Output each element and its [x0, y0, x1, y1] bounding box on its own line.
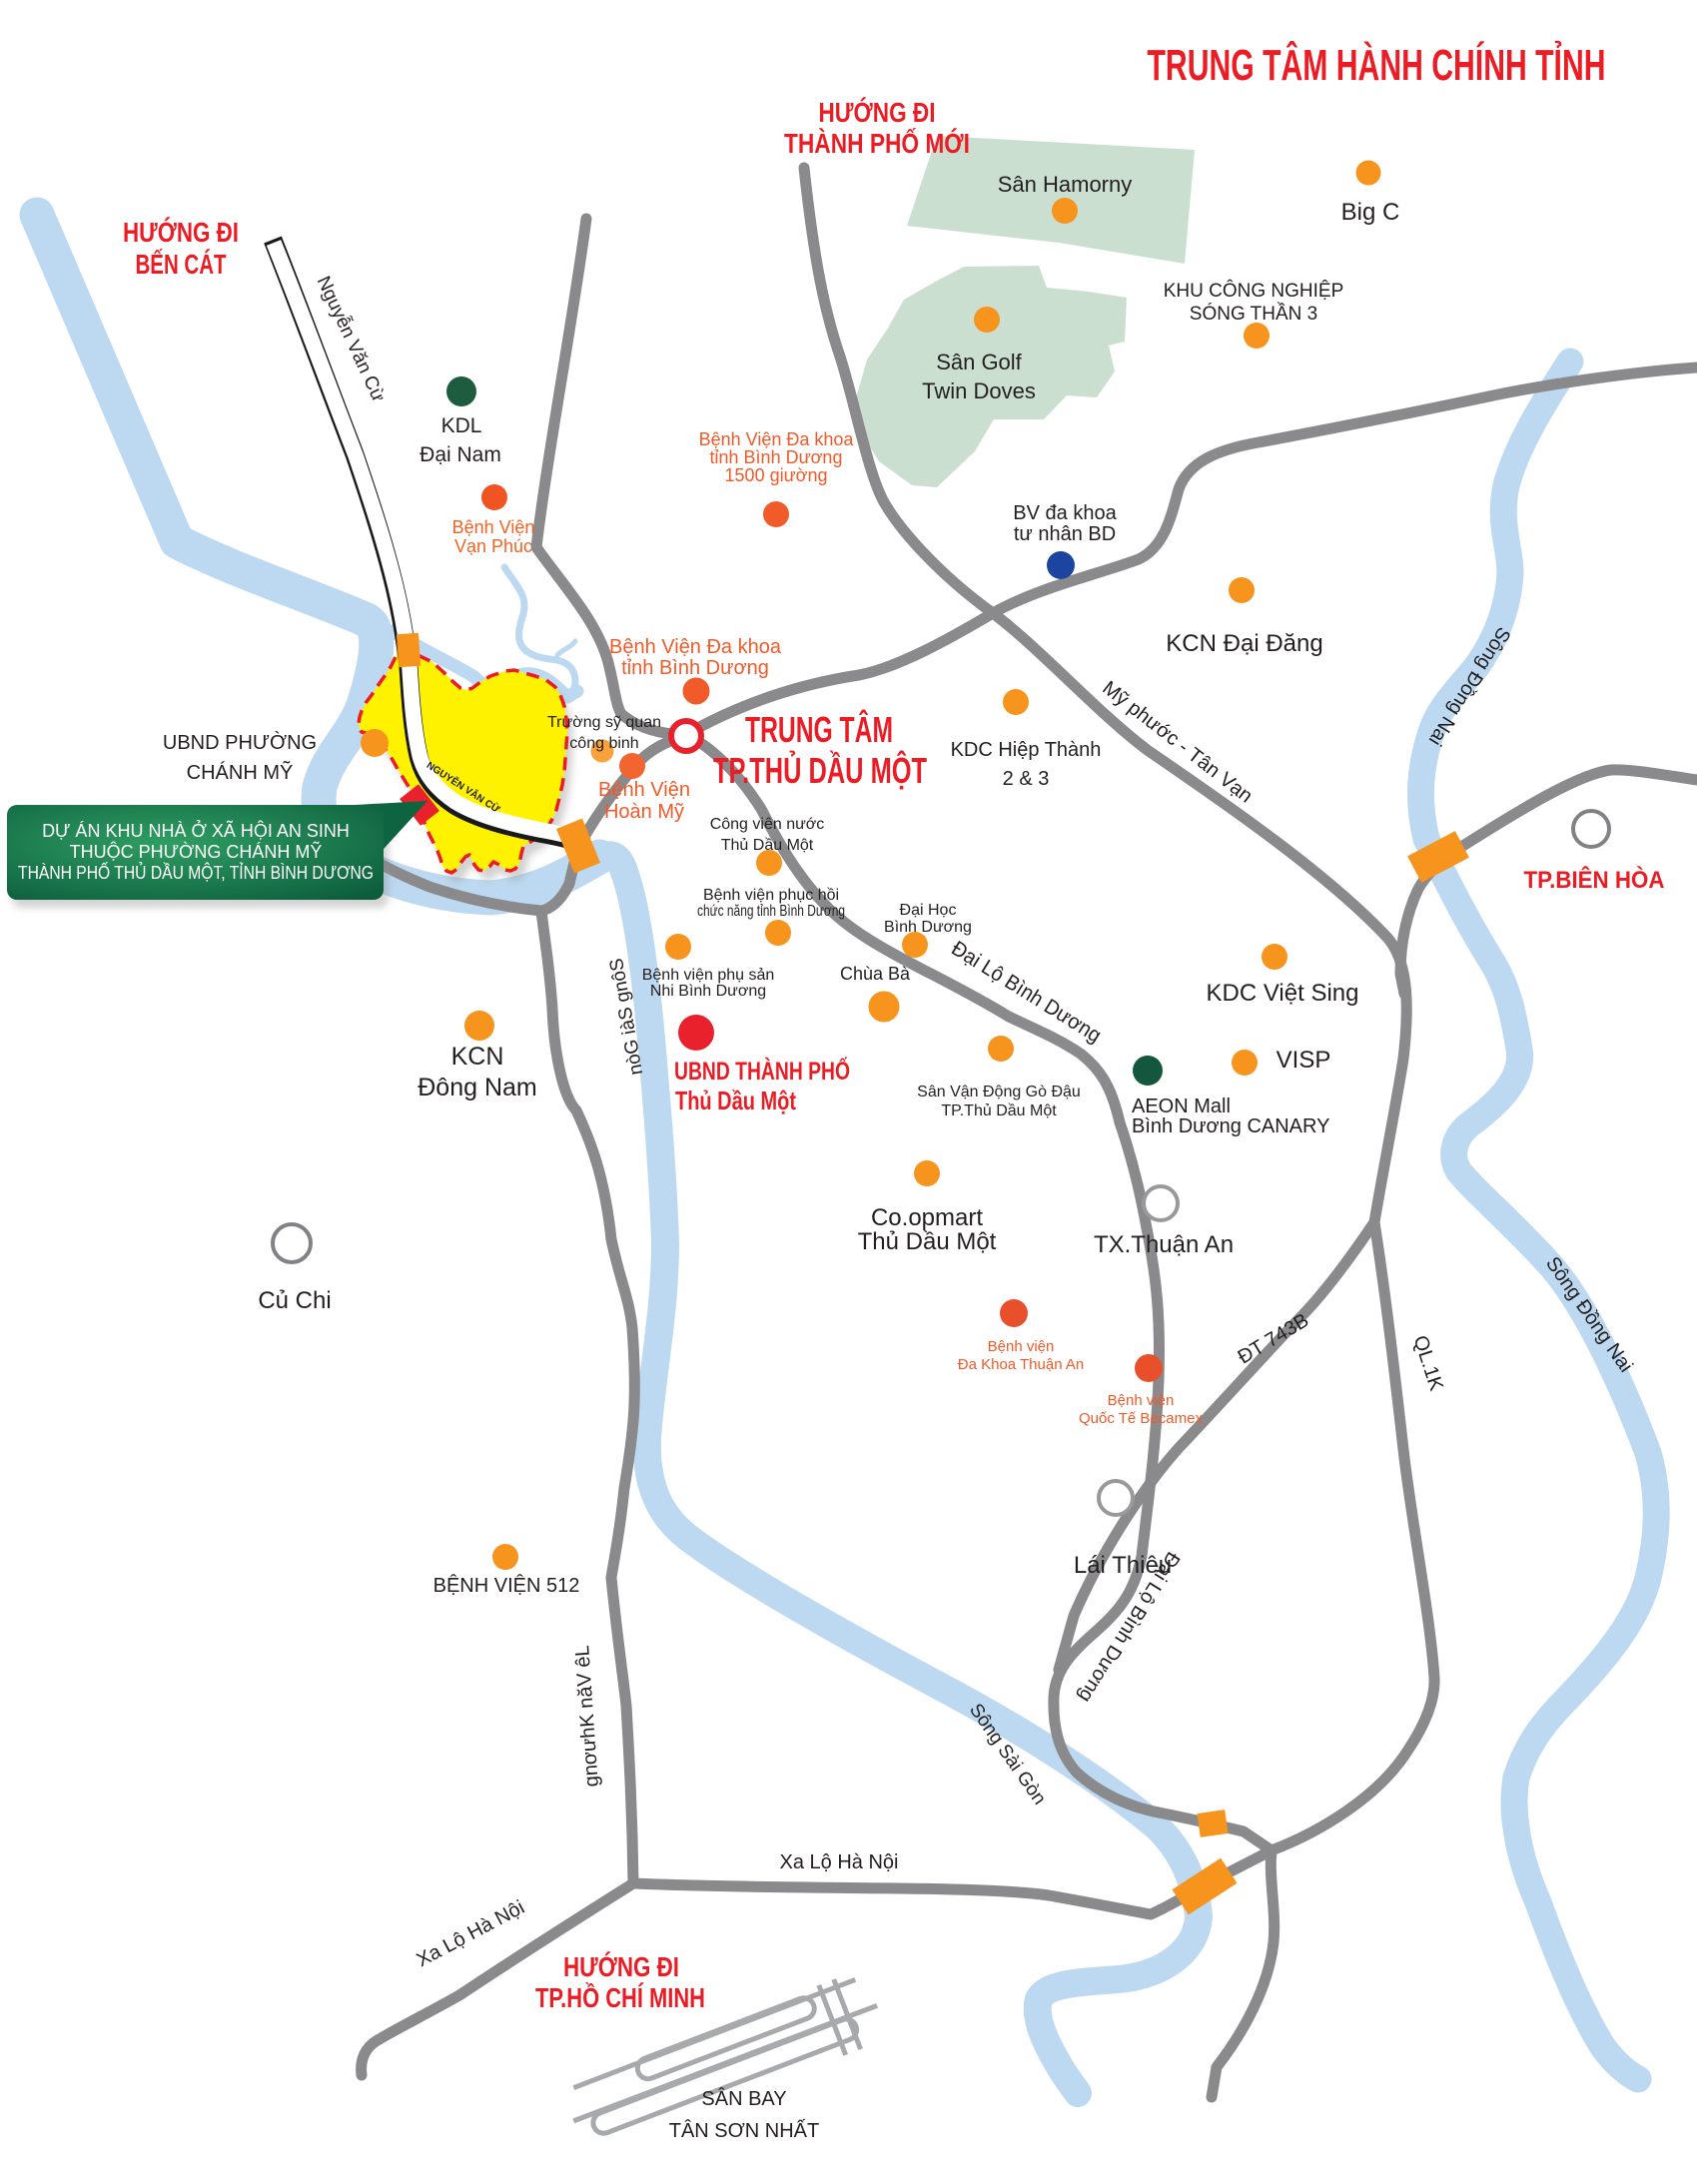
svg-text:THUỘC PHƯỜNG CHÁNH MỸ: THUỘC PHƯỜNG CHÁNH MỸ [70, 841, 323, 862]
svg-text:KDL: KDL [441, 414, 482, 437]
svg-text:UBND PHƯỜNG: UBND PHƯỜNG [163, 731, 317, 754]
svg-text:Twin Doves: Twin Doves [922, 378, 1036, 403]
svg-text:Sân Vận Động Gò Đậu: Sân Vận Động Gò Đậu [917, 1084, 1081, 1100]
svg-text:chức năng tỉnh Bình Dương: chức năng tỉnh Bình Dương [697, 903, 845, 920]
svg-text:THÀNH PHỐ THỦ DẦU MỘT, TỈNH BÌ: THÀNH PHỐ THỦ DẦU MỘT, TỈNH BÌNH DƯƠNG [18, 862, 374, 883]
svg-text:Thủ Dầu Một: Thủ Dầu Một [858, 1228, 997, 1255]
svg-text:tư nhân BD: tư nhân BD [1014, 523, 1116, 545]
svg-text:Đa Khoa Thuận An: Đa Khoa Thuận An [958, 1356, 1085, 1373]
svg-text:VISP: VISP [1276, 1047, 1331, 1074]
svg-text:TX.Thuận An: TX.Thuận An [1094, 1231, 1234, 1258]
svg-text:KHU CÔNG NGHIỆP: KHU CÔNG NGHIỆP [1164, 280, 1344, 302]
svg-text:BẾN CÁT: BẾN CÁT [136, 249, 227, 280]
svg-text:Thủ Dầu Một: Thủ Dầu Một [675, 1086, 796, 1115]
svg-text:AEON Mall: AEON Mall [1132, 1095, 1231, 1117]
svg-text:TP.THỦ DẦU MỘT: TP.THỦ DẦU MỘT [713, 749, 927, 791]
svg-text:SÂN BAY: SÂN BAY [701, 2087, 786, 2110]
svg-text:Bệnh viện: Bệnh viện [1108, 1392, 1175, 1409]
svg-text:Công viên nước: Công viên nước [710, 816, 825, 833]
svg-text:Bệnh Viện Đa khoa: Bệnh Viện Đa khoa [609, 636, 782, 658]
svg-text:Bình Dương CANARY: Bình Dương CANARY [1132, 1115, 1329, 1137]
svg-text:tỉnh Bình Dương: tỉnh Bình Dương [710, 447, 843, 467]
svg-text:KDC Hiệp Thành: KDC Hiệp Thành [951, 739, 1102, 761]
svg-text:TP.HỒ CHÍ MINH: TP.HỒ CHÍ MINH [535, 1982, 705, 2013]
svg-text:BV đa khoa: BV đa khoa [1013, 502, 1117, 524]
svg-text:Sân Golf: Sân Golf [936, 350, 1022, 374]
svg-text:công binh: công binh [569, 735, 638, 752]
svg-text:Nhi Bình Dương: Nhi Bình Dương [650, 983, 766, 1000]
svg-text:HƯỚNG ĐI: HƯỚNG ĐI [563, 1951, 679, 1982]
svg-text:Lái Thiêu: Lái Thiêu [1074, 1552, 1172, 1579]
svg-text:Co.opmart: Co.opmart [871, 1204, 983, 1231]
svg-text:TP.BIÊN HÒA: TP.BIÊN HÒA [1524, 866, 1665, 894]
svg-text:Sân Hamorny: Sân Hamorny [998, 172, 1133, 197]
svg-text:Bệnh viện phụ sản: Bệnh viện phụ sản [642, 967, 775, 984]
svg-text:Chùa Bà: Chùa Bà [840, 964, 911, 984]
svg-text:2 & 3: 2 & 3 [1003, 768, 1050, 790]
svg-text:Củ Chi: Củ Chi [258, 1287, 331, 1314]
svg-text:TÂN SƠN NHẤT: TÂN SƠN NHẤT [669, 2119, 820, 2142]
svg-text:BỆNH VIỆN 512: BỆNH VIỆN 512 [433, 1574, 580, 1597]
svg-text:Bệnh Viện Đa khoa: Bệnh Viện Đa khoa [699, 429, 855, 449]
svg-text:Bình Dương: Bình Dương [884, 919, 972, 936]
svg-text:Đại Nam: Đại Nam [420, 443, 501, 466]
svg-text:DỰ ÁN KHU NHÀ Ở XÃ HỘI AN SINH: DỰ ÁN KHU NHÀ Ở XÃ HỘI AN SINH [42, 820, 350, 841]
svg-text:Xa Lộ Hà Nội: Xa Lộ Hà Nội [780, 1851, 899, 1873]
svg-text:Đông Nam: Đông Nam [418, 1074, 537, 1101]
svg-text:UBND THÀNH PHỐ: UBND THÀNH PHỐ [674, 1056, 850, 1086]
svg-text:KCN Đại Đăng: KCN Đại Đăng [1166, 630, 1322, 657]
svg-text:Trường sỹ quan: Trường sỹ quan [547, 714, 661, 731]
svg-text:KCN: KCN [451, 1043, 504, 1071]
svg-text:KDC Việt Sing: KDC Việt Sing [1207, 980, 1359, 1007]
svg-text:Bệnh Viện: Bệnh Viện [598, 779, 690, 801]
svg-text:SÓNG THẦN 3: SÓNG THẦN 3 [1190, 303, 1317, 325]
svg-text:1500 giường: 1500 giường [725, 465, 828, 485]
svg-text:tỉnh Bình Dương: tỉnh Bình Dương [621, 657, 769, 679]
svg-text:TRUNG TÂM HÀNH CHÍNH TỈNH: TRUNG TÂM HÀNH CHÍNH TỈNH [1148, 40, 1606, 90]
svg-text:THÀNH PHỐ MỚI: THÀNH PHỐ MỚI [784, 127, 970, 159]
svg-text:Vạn Phúc: Vạn Phúc [454, 536, 532, 556]
svg-text:TRUNG TÂM: TRUNG TÂM [745, 708, 893, 750]
svg-text:Hoàn Mỹ: Hoàn Mỹ [604, 801, 684, 823]
svg-text:Big C: Big C [1341, 199, 1400, 226]
svg-text:Quốc Tế Becamex: Quốc Tế Becamex [1079, 1410, 1203, 1427]
svg-text:Bệnh viện: Bệnh viện [988, 1338, 1055, 1355]
svg-text:TP.Thủ Dầu Một: TP.Thủ Dầu Một [941, 1102, 1057, 1119]
svg-text:Đại Học: Đại Học [900, 902, 957, 919]
svg-text:Bệnh Viện: Bệnh Viện [452, 517, 535, 537]
svg-text:CHÁNH MỸ: CHÁNH MỸ [187, 760, 294, 784]
svg-text:HƯỚNG ĐI: HƯỚNG ĐI [819, 97, 936, 128]
svg-text:Thủ Dầu Một: Thủ Dầu Một [721, 837, 814, 854]
svg-text:Bệnh viện phục hồi: Bệnh viện phục hồi [703, 887, 839, 904]
svg-text:HƯỚNG ĐI: HƯỚNG ĐI [123, 217, 239, 248]
